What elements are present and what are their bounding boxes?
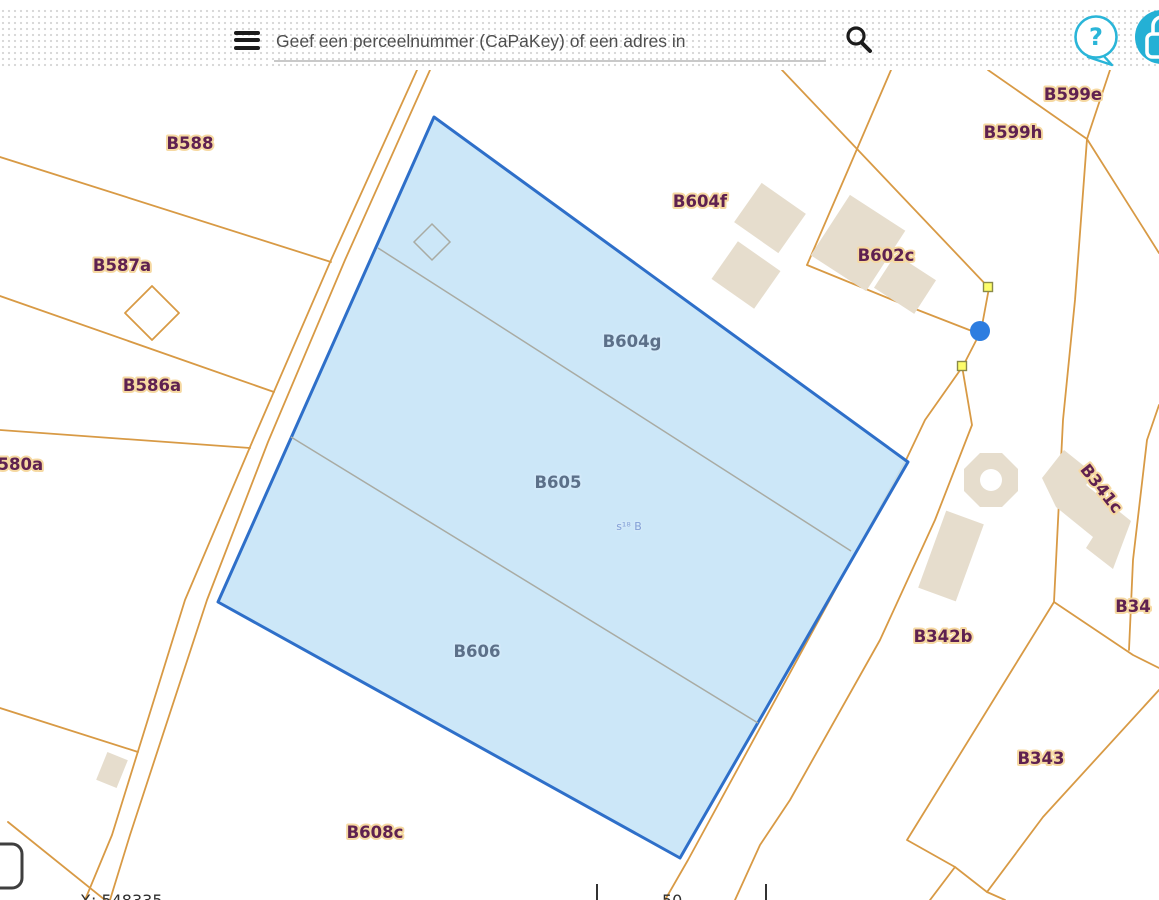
parcel-label-b608c: B608c <box>347 823 404 842</box>
parcel-label-b604g: B604g <box>603 332 662 351</box>
question-glyph: ? <box>1089 23 1103 51</box>
parcel-label-b606: B606 <box>453 642 500 661</box>
vertex-marker[interactable] <box>984 283 993 292</box>
magnifier-icon <box>840 22 878 58</box>
search-button[interactable] <box>840 22 878 58</box>
app-window: B588 B587a B586a B580a B604f B602c B599e… <box>0 0 1159 900</box>
map-control-button[interactable] <box>0 844 22 888</box>
parcel-label-b588: B588 <box>166 134 213 153</box>
parcel-label-b604f: B604f <box>673 192 728 211</box>
parcel-label-b602c: B602c <box>858 246 915 265</box>
map-canvas[interactable]: B588 B587a B586a B580a B604f B602c B599e… <box>0 0 1159 900</box>
vertex-marker[interactable] <box>958 362 967 371</box>
hamburger-menu-button[interactable] <box>234 26 264 54</box>
top-bar: ? <box>0 0 1159 70</box>
parcel-label-b342b: B342b <box>914 627 973 646</box>
coordinate-readout: X: 548335 <box>80 891 163 900</box>
parcel-label-b605: B605 <box>534 473 581 492</box>
parcel-label-b343: B343 <box>1017 749 1064 768</box>
parcel-label-b587a: B587a <box>93 256 151 275</box>
parcel-label-b599e: B599e <box>1044 85 1102 104</box>
edit-point[interactable] <box>970 321 990 341</box>
parcel-label-b580a: B580a <box>0 455 43 474</box>
parcel-label-b586a: B586a <box>123 376 181 395</box>
login-button[interactable] <box>1128 6 1159 68</box>
parcel-label-b599h: B599h <box>984 123 1043 142</box>
hamburger-icon <box>234 31 260 35</box>
help-button[interactable]: ? <box>1071 12 1123 68</box>
parcel-label-b34-cut: B34 <box>1115 597 1151 616</box>
parcel-sub-label: s¹⁸ B <box>616 520 642 533</box>
search-input[interactable] <box>274 22 826 62</box>
scale-value: 50 <box>662 891 682 900</box>
diamond-landmark <box>125 286 179 340</box>
